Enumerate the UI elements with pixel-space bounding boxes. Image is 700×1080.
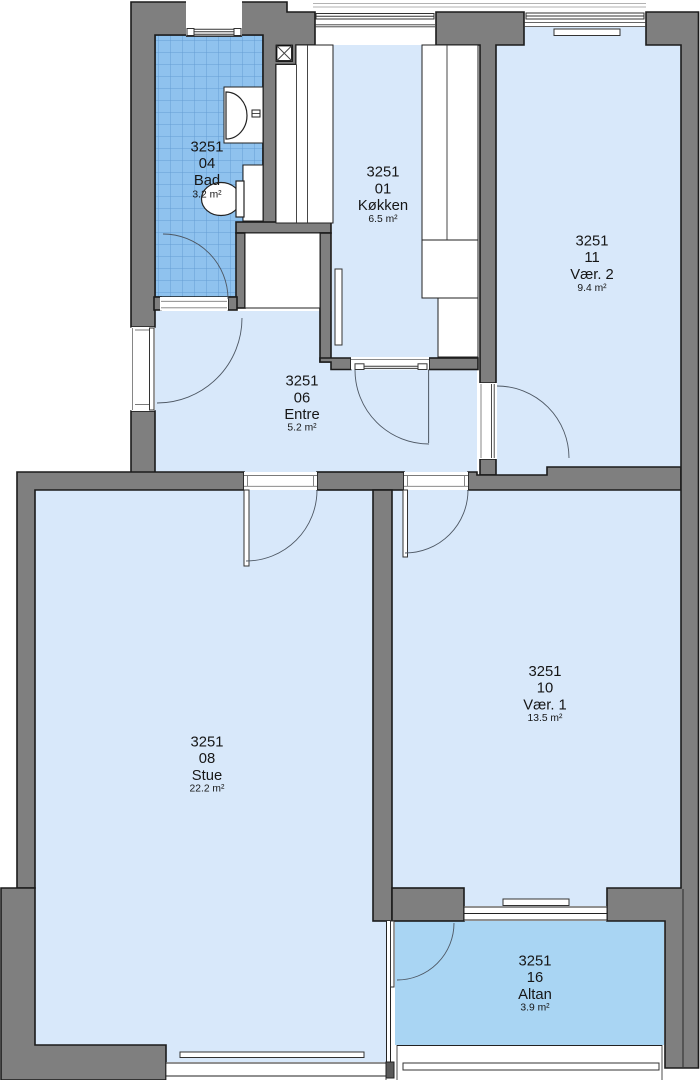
svg-text:11: 11 <box>584 250 599 266</box>
svg-text:6.5 m²: 6.5 m² <box>368 214 398 225</box>
svg-text:04: 04 <box>199 156 215 172</box>
svg-text:22.2 m²: 22.2 m² <box>190 783 225 794</box>
svg-text:3251: 3251 <box>576 233 609 249</box>
svg-text:Entre: Entre <box>284 407 319 423</box>
svg-text:Altan: Altan <box>518 987 552 1003</box>
svg-text:10: 10 <box>537 681 553 697</box>
svg-text:3251: 3251 <box>286 374 319 390</box>
svg-text:3251: 3251 <box>367 165 400 181</box>
svg-text:06: 06 <box>294 390 310 406</box>
svg-text:Vær. 2: Vær. 2 <box>570 267 614 283</box>
svg-text:3251: 3251 <box>191 734 224 750</box>
svg-text:5.2 m²: 5.2 m² <box>287 423 317 434</box>
svg-text:13.5 m²: 13.5 m² <box>528 713 563 724</box>
svg-text:9.4 m²: 9.4 m² <box>577 283 607 294</box>
svg-text:Stue: Stue <box>192 768 222 784</box>
svg-text:3251: 3251 <box>519 954 552 970</box>
svg-text:08: 08 <box>199 751 215 767</box>
svg-text:Køkken: Køkken <box>358 198 408 214</box>
svg-text:3.2 m²: 3.2 m² <box>192 189 222 200</box>
svg-text:16: 16 <box>527 970 543 986</box>
svg-text:3251: 3251 <box>529 664 562 680</box>
svg-text:Bad: Bad <box>194 173 220 189</box>
svg-text:Vær. 1: Vær. 1 <box>523 697 567 713</box>
svg-text:3.9 m²: 3.9 m² <box>520 1002 550 1013</box>
svg-text:01: 01 <box>375 181 391 197</box>
svg-text:3251: 3251 <box>191 140 224 156</box>
